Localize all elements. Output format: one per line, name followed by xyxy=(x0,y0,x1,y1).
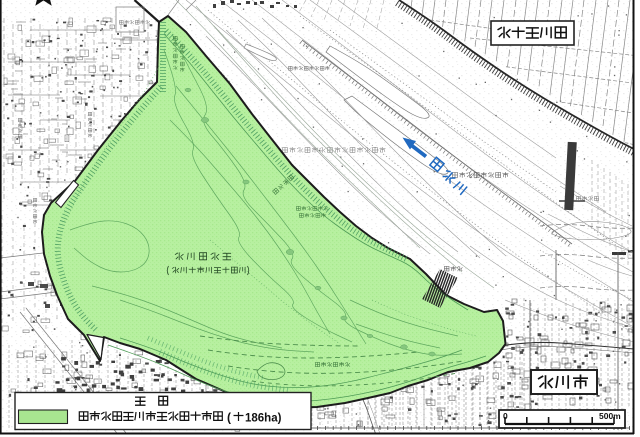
svg-text:500m: 500m xyxy=(599,411,621,421)
svg-text:(: ( xyxy=(227,411,231,425)
svg-text:186ha): 186ha) xyxy=(245,413,282,425)
svg-text:0: 0 xyxy=(503,411,508,421)
